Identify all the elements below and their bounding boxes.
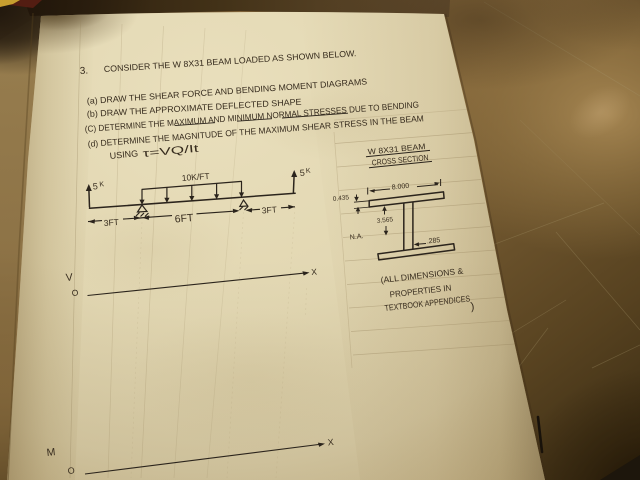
svg-text:K: K [99,181,104,188]
svg-text:3.: 3. [79,65,88,77]
svg-text:V: V [65,271,73,284]
svg-text:X: X [327,437,334,448]
svg-text:O: O [71,287,79,298]
svg-text:O: O [67,465,75,476]
svg-text:K: K [306,168,311,175]
svg-text:3FT: 3FT [261,204,277,215]
svg-text:M: M [46,446,56,459]
svg-text:3FT: 3FT [103,217,119,228]
svg-text:N.A.: N.A. [349,233,363,241]
svg-text:.285: .285 [426,237,440,245]
svg-text:6FT: 6FT [174,212,194,225]
svg-text:5: 5 [92,181,98,191]
svg-text:5: 5 [299,168,305,178]
